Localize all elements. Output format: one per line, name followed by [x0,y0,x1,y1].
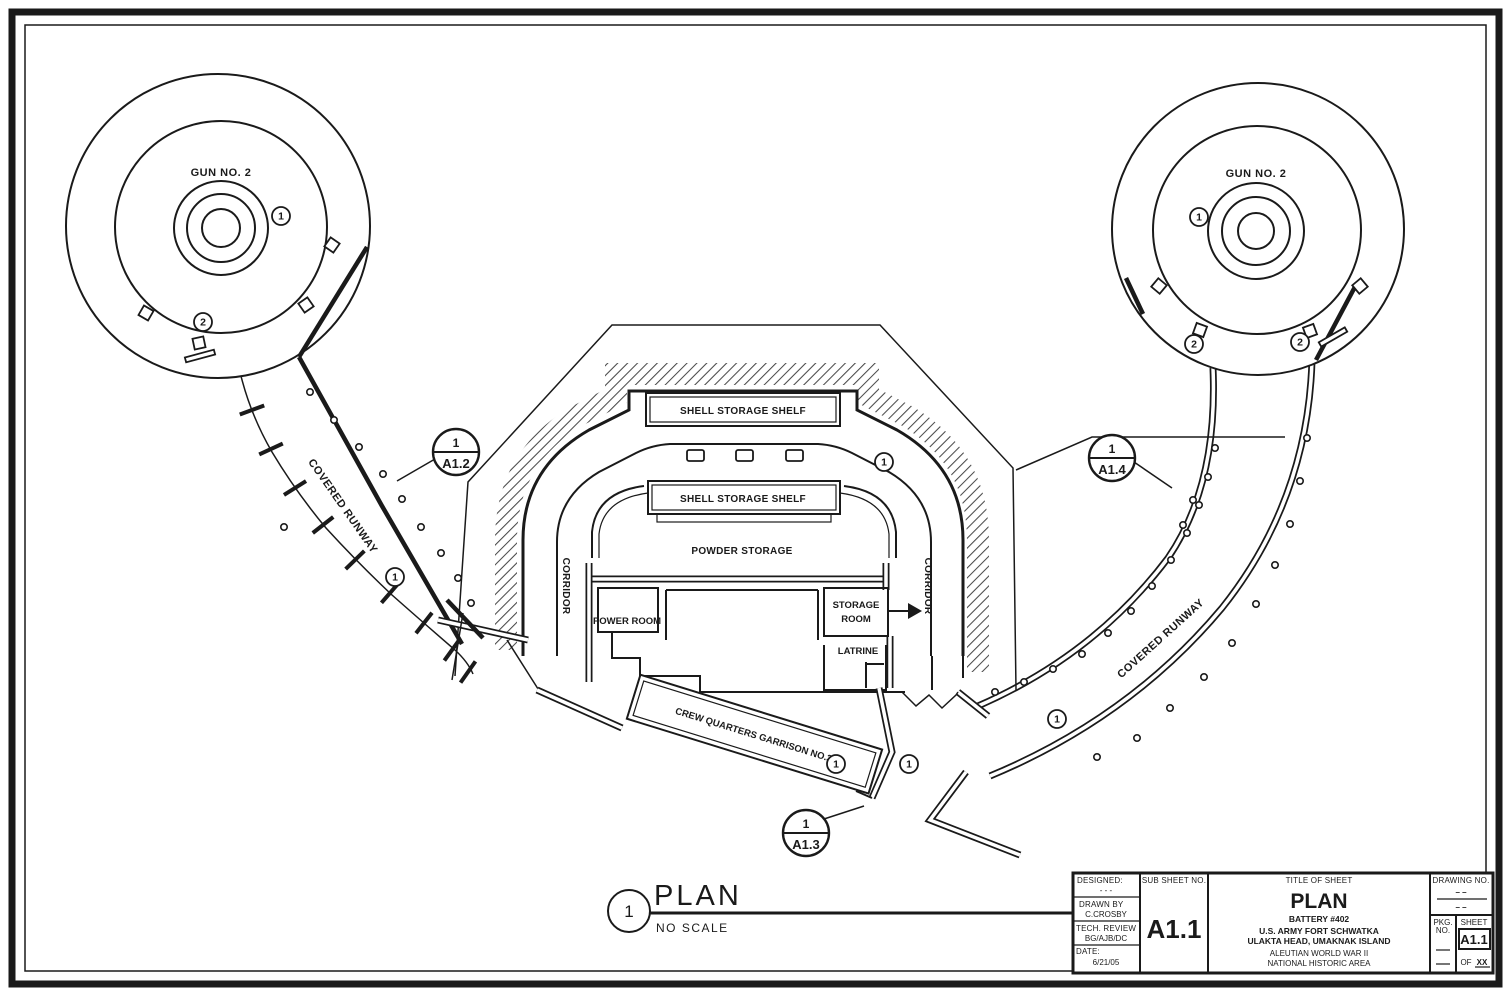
svg-text:A1.2: A1.2 [442,456,469,471]
corridor-label-right: CORRIDOR [922,558,933,615]
callout-a1-4: 1 A1.4 [1089,435,1172,488]
org-line2: ULAKTA HEAD, UMAKNAK ISLAND [1247,936,1390,946]
callout-a1-2: 1 A1.2 [397,429,479,481]
latrine-label: LATRINE [838,646,878,657]
storage-room-label-1: STORAGE [833,600,880,611]
drawing-sheet: COVERED RUNWAY COVERED RUNWAY GUN NO. 2 [0,0,1511,996]
gun-label-left: GUN NO. 2 [191,167,252,179]
keynote-1: 1 [827,755,845,773]
date-label: DATE: [1076,947,1100,956]
shell-storage-shelf-label: SHELL STORAGE SHELF [680,406,806,417]
drawing-no-label: DRAWING NO. [1432,876,1489,885]
svg-text:1: 1 [803,817,810,831]
of-label: OF [1460,958,1471,967]
tech-review-value: BG/AJB/DC [1085,934,1127,943]
keynote-1: 1 [1190,208,1208,226]
keynote-2: 2 [1291,333,1309,351]
keynote-1: 1 [386,568,404,586]
svg-text:2: 2 [200,317,206,329]
svg-text:1: 1 [392,572,398,584]
keynote-1: 1 [1048,710,1066,728]
svg-text:2: 2 [1191,339,1197,351]
left-covered-runway: COVERED RUNWAY [240,357,476,683]
apron-boundary-line [1016,437,1285,470]
org-line1: U.S. ARMY FORT SCHWATKA [1259,926,1379,936]
keynote-2: 2 [194,313,212,331]
plan-drawing: COVERED RUNWAY COVERED RUNWAY GUN NO. 2 [0,0,1511,996]
tech-review-label: TECH. REVIEW [1076,924,1136,933]
drawing-no-dash1: – – [1455,888,1467,897]
drawn-by-label: DRAWN BY [1079,900,1124,909]
powder-storage-label: POWDER STORAGE [691,546,792,557]
drawn-by-value: C.CROSBY [1085,910,1127,919]
title-of-sheet-label: TITLE OF SHEET [1286,876,1353,885]
svg-text:1: 1 [453,436,460,450]
vent-openings [687,450,803,461]
power-room: POWER ROOM [593,588,661,632]
sub-sheet-value: A1.1 [1147,914,1202,944]
callout-a1-3: 1 A1.3 [783,806,864,856]
view-title: 1 PLAN NO SCALE [608,880,1102,935]
sawtooth-edge [902,692,958,708]
covered-runway-label-left: COVERED RUNWAY [305,457,379,556]
left-gun-emplacement: GUN NO. 2 [66,74,370,378]
shell-storage-shelf-top: SHELL STORAGE SHELF [646,393,840,426]
sub-sheet-label: SUB SHEET NO. [1142,876,1206,885]
sheet-label: SHEET [1461,918,1488,927]
svg-text:1: 1 [833,759,839,771]
fixture-icon [866,662,884,688]
magazine-structure: SHELL STORAGE SHELF SHELL STORAGE SHELF … [438,325,1016,728]
keynote-1: 1 [875,453,893,471]
storage-room: STORAGE ROOM [824,588,922,636]
sheet-title: PLAN [1290,890,1347,913]
designed-label: DESIGNED: [1077,876,1123,885]
pkg-no-label-2: NO. [1436,926,1450,935]
svg-text:2: 2 [1297,337,1303,349]
svg-text:1: 1 [1109,442,1116,456]
door-arrow-icon [908,603,922,619]
svg-text:1: 1 [278,211,284,223]
svg-text:A1.4: A1.4 [1098,462,1126,477]
crew-quarters: CREW QUARTERS GARRISON NO.3 [627,675,892,798]
gun-label-right: GUN NO. 2 [1226,168,1287,180]
battery-subtitle: BATTERY #402 [1289,914,1350,924]
view-title-label: PLAN [654,880,742,912]
view-scale-label: NO SCALE [656,921,729,935]
svg-text:A1.3: A1.3 [792,837,819,852]
area-line1: ALEUTIAN WORLD WAR II [1270,949,1368,958]
date-value: 6/21/05 [1093,958,1120,967]
designed-value: - - - [1100,886,1113,895]
title-block: DESIGNED: - - - DRAWN BY C.CROSBY TECH. … [1073,873,1493,973]
keynote-2: 2 [1185,335,1203,353]
of-value: XX [1477,958,1488,967]
keynote-1: 1 [272,207,290,225]
latrine: LATRINE [824,645,886,690]
keynote-1: 1 [900,755,918,773]
svg-text:1: 1 [906,759,912,771]
svg-text:1: 1 [1054,714,1060,726]
corridor-label-left: CORRIDOR [560,558,571,615]
svg-text:1: 1 [1196,212,1202,224]
svg-text:1: 1 [881,457,887,469]
right-gun-emplacement: GUN NO. 2 [1112,83,1404,375]
power-room-label: POWER ROOM [593,616,661,627]
storage-room-label-2: ROOM [841,614,871,625]
shell-storage-shelf-label: SHELL STORAGE SHELF [680,494,806,505]
drawing-no-dash2: – – [1455,903,1467,912]
sheet-value: A1.1 [1460,932,1487,947]
area-line2: NATIONAL HISTORIC AREA [1268,959,1372,968]
view-number: 1 [624,902,633,921]
retaining-wall-zigzag [930,772,1020,855]
